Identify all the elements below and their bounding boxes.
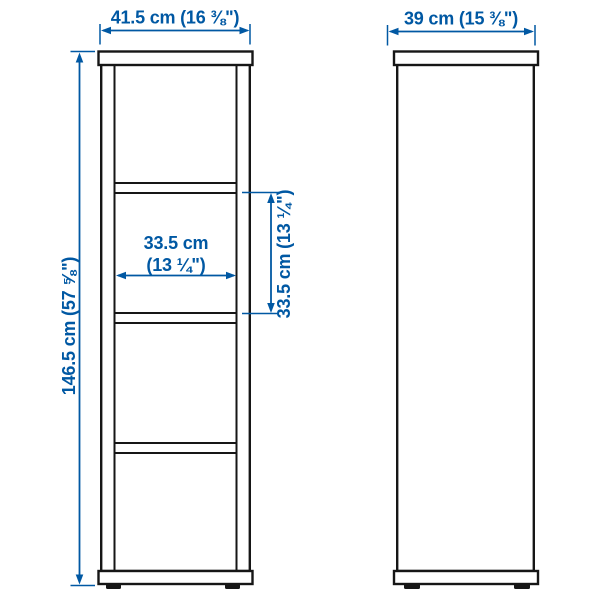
depth-dim-label: 39 cm (15 ⅜") — [404, 9, 518, 29]
depth-dim-arrowhead-right — [524, 28, 534, 36]
height-dim-arrowhead-bottom — [76, 575, 84, 585]
height-dim-label: 146.5 cm (57 ⅝") — [59, 257, 79, 396]
diagram-canvas: 41.5 cm (16 ⅜") 39 cm (15 ⅜") 146.5 cm (… — [0, 0, 600, 600]
front-top-cap — [99, 52, 253, 66]
depth-dimension: 39 cm (15 ⅜") — [388, 9, 536, 46]
front-bottom-cap — [99, 571, 253, 584]
side-top-cap — [394, 52, 538, 66]
inner-width-label-cm: 33.5 cm — [144, 233, 209, 253]
width-dim-arrowhead-right — [240, 27, 250, 35]
depth-dim-arrowhead-left — [389, 28, 399, 36]
height-dimension: 146.5 cm (57 ⅝") — [59, 52, 95, 586]
dimension-diagram: 41.5 cm (16 ⅜") 39 cm (15 ⅜") 146.5 cm (… — [0, 0, 600, 600]
front-view — [99, 52, 253, 590]
width-dim-label: 41.5 cm (16 ⅜") — [111, 8, 240, 28]
width-dimension: 41.5 cm (16 ⅜") — [100, 8, 250, 45]
front-foot-left — [106, 584, 121, 589]
height-dim-arrowhead-top — [76, 53, 84, 63]
front-body — [101, 63, 250, 571]
side-foot-left — [404, 584, 420, 589]
side-foot-right — [514, 584, 530, 589]
side-view — [394, 52, 538, 590]
side-body — [397, 63, 534, 571]
inner-height-dim-label: 33.5 cm (13 ¼") — [274, 189, 294, 318]
inner-width-label-in: (13 ¼") — [146, 255, 205, 275]
width-dim-arrowhead-left — [101, 27, 111, 35]
side-bottom-cap — [394, 571, 538, 584]
front-foot-right — [225, 584, 240, 589]
